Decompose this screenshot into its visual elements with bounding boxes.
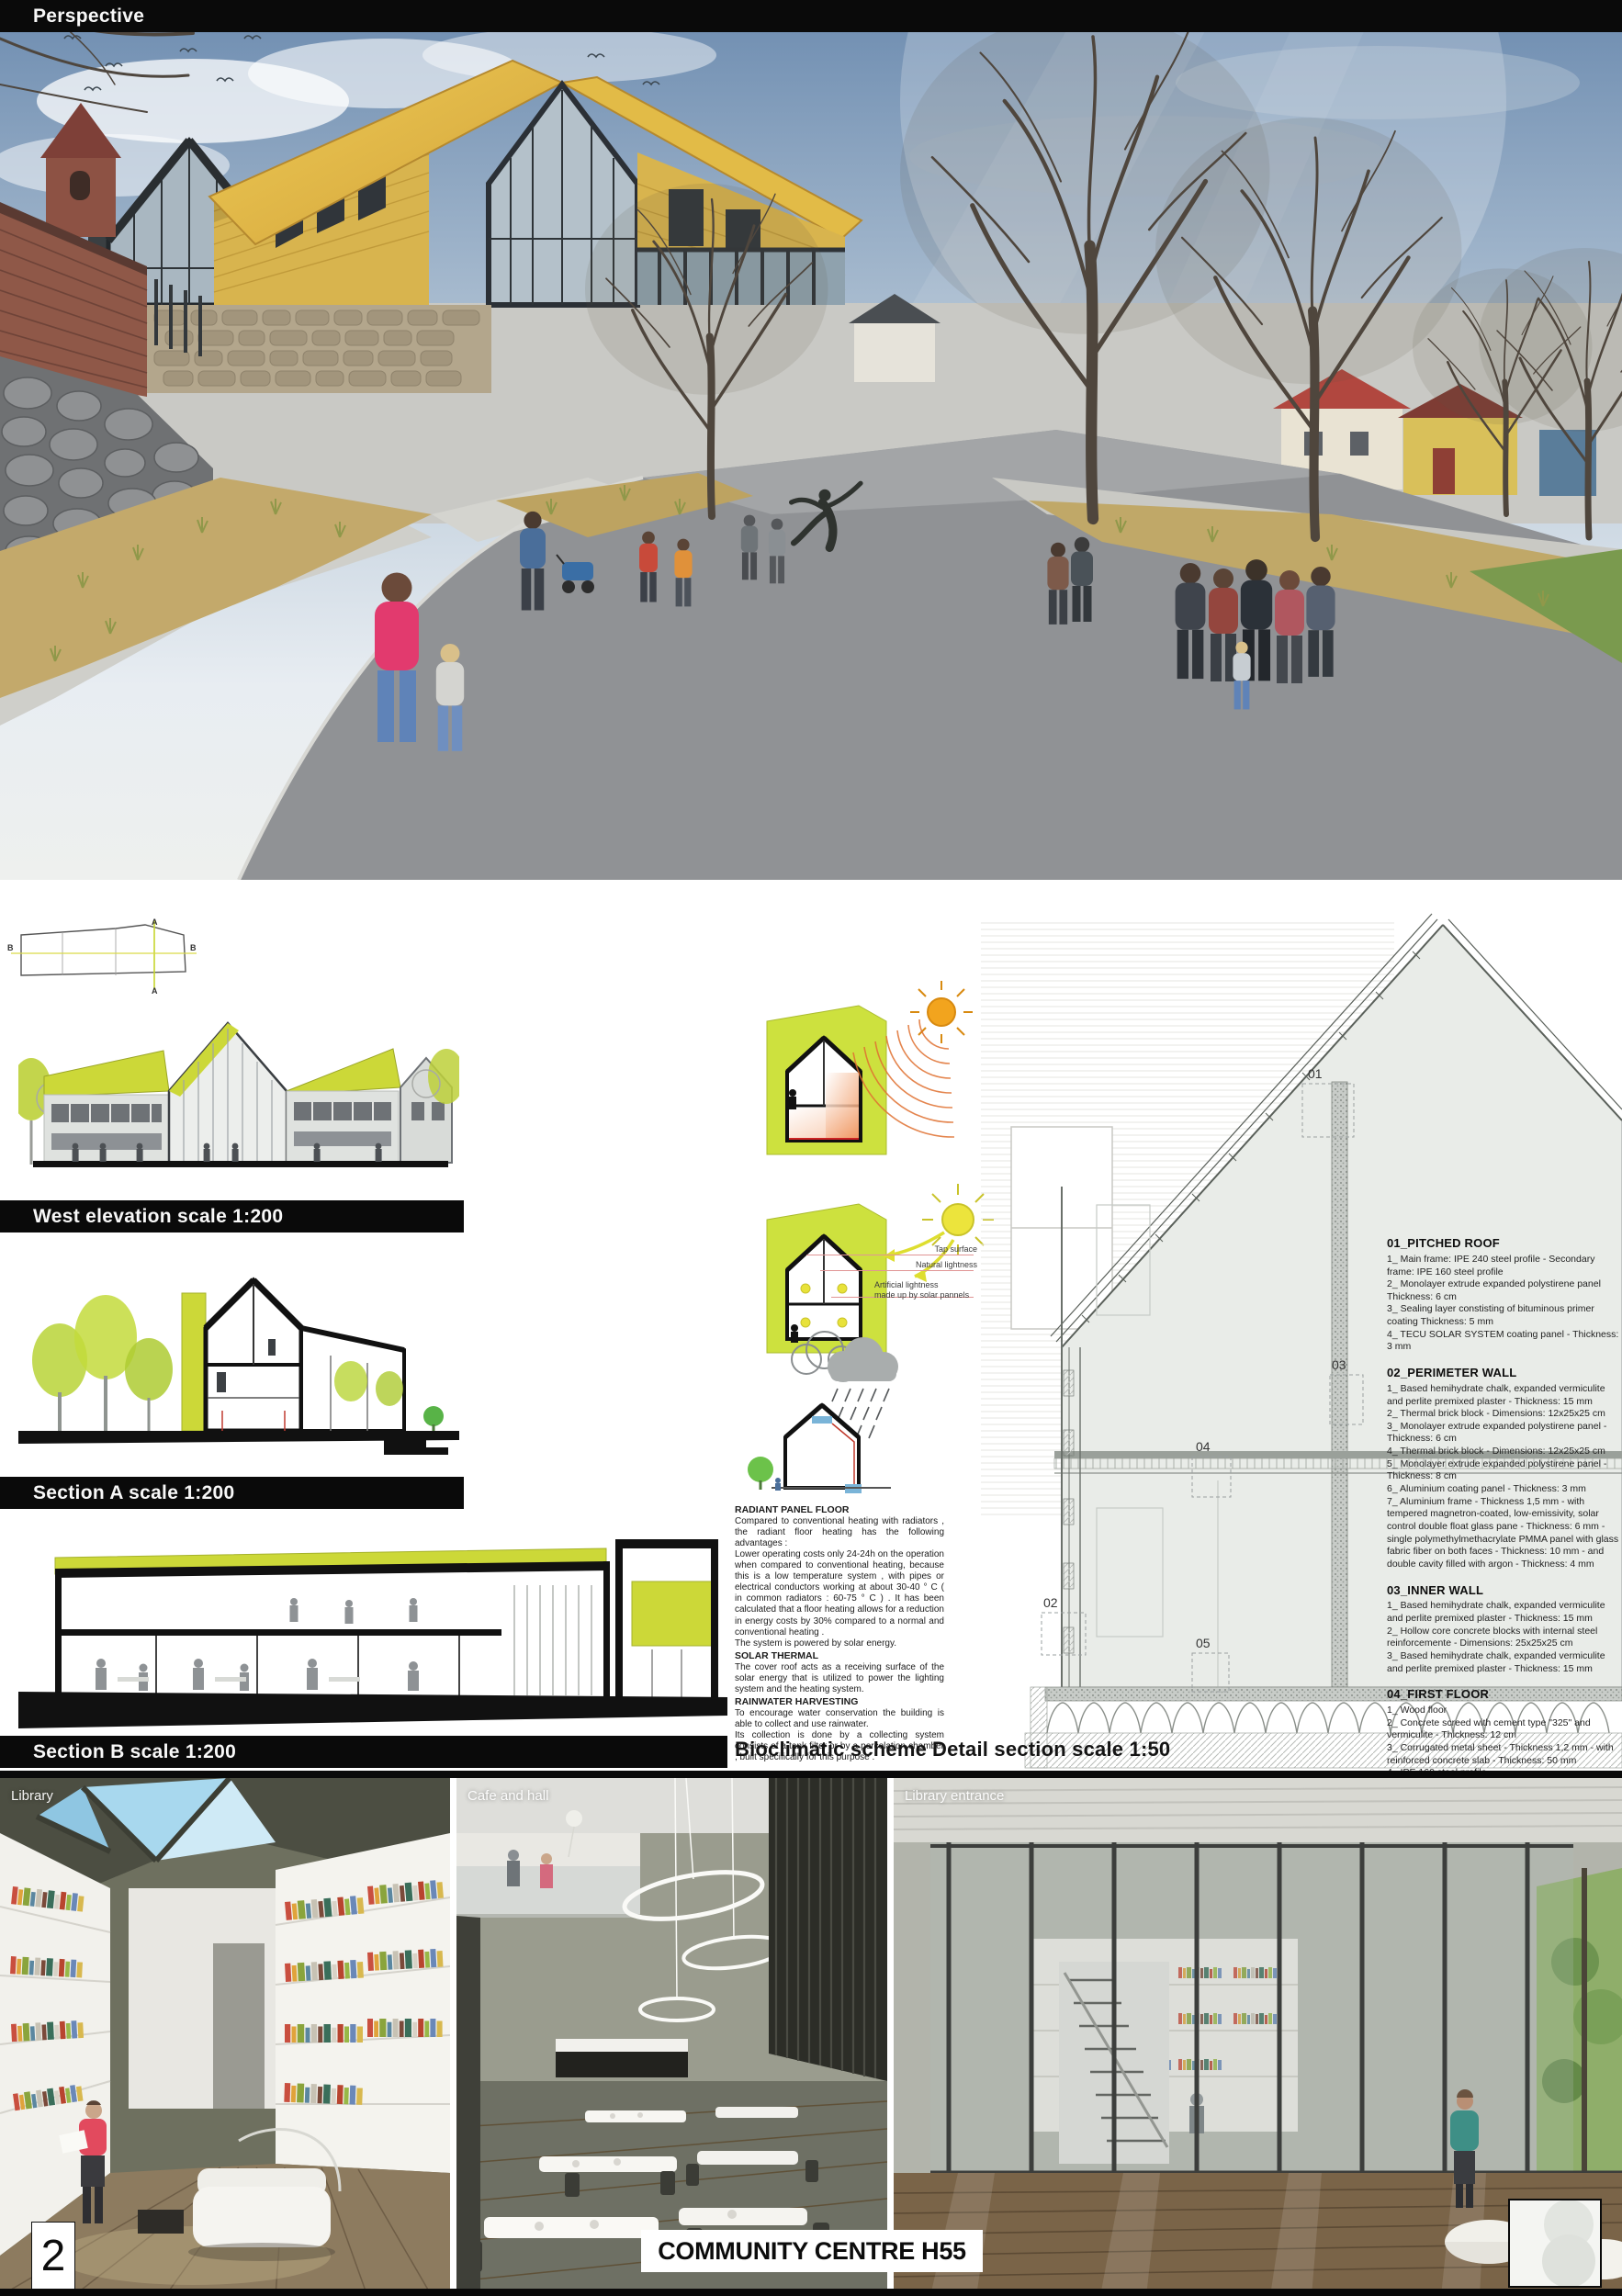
bioclimatic-paragraph: SOLAR THERMAL The cover roof acts as a r…: [735, 1650, 944, 1695]
building-shell: [55, 1561, 610, 1700]
spec-item: 7_ Aluminium frame - Thickness 1,5 mm - …: [1387, 1496, 1620, 1571]
spec-item: 2_ Thermal brick block - Dimensions: 12x…: [1387, 1408, 1620, 1421]
bioclimatic-title: Bioclimatic scheme: [735, 1738, 927, 1761]
inner-wall: [1332, 1082, 1347, 1687]
ground-band: [33, 1161, 448, 1167]
spec-items: 1_ Main frame: IPE 240 steel profile - S…: [1387, 1254, 1620, 1354]
spec-section: 02_PERIMETER WALL 1_ Based hemihydrate c…: [1387, 1366, 1620, 1571]
spec-items: 1_ Based hemihydrate chalk, expanded ver…: [1387, 1600, 1620, 1675]
section-a-drawing: [18, 1236, 459, 1473]
spec-section: 03_INNER WALL 1_ Based hemihydrate chalk…: [1387, 1583, 1620, 1676]
perspective-label: Perspective: [33, 6, 144, 28]
rainwater-house: [748, 1405, 891, 1493]
spec-item: 1_ Based hemihydrate chalk, expanded ver…: [1387, 1383, 1620, 1408]
left-partition: [456, 1916, 480, 2296]
spec-item: 1_ Based hemihydrate chalk, expanded ver…: [1387, 1600, 1620, 1625]
lime-trees-left: [32, 1295, 173, 1431]
callout-02: 02: [1043, 1595, 1058, 1610]
counter: [556, 2039, 688, 2077]
page-number-box: 2: [31, 2222, 75, 2290]
logo-mark-icon: [1510, 2200, 1600, 2286]
section-a-label: Section A scale 1:200: [33, 1482, 235, 1504]
west-elevation-label-bar: West elevation scale 1:200: [0, 1200, 464, 1232]
bottom-edge-strip: [0, 2289, 1622, 2296]
marker-b-left: B: [7, 943, 14, 952]
library-render: [0, 1778, 450, 2296]
spec-item: 4_ Thermal brick block - Dimensions: 12x…: [1387, 1446, 1620, 1458]
right-shelving: [276, 1833, 450, 2173]
panel-label-entrance: Library entrance: [905, 1788, 1004, 1804]
west-elevation-label: West elevation scale 1:200: [33, 1206, 283, 1228]
spec-heading: 01_PITCHED ROOF: [1387, 1236, 1620, 1252]
perspective-label-bar: Perspective: [0, 0, 1622, 32]
marker-b-right: B: [190, 943, 197, 952]
section-a-label-bar: Section A scale 1:200: [0, 1477, 464, 1509]
cafe-render: [456, 1778, 887, 2296]
spec-section: 01_PITCHED ROOF 1_ Main frame: IPE 240 s…: [1387, 1236, 1620, 1354]
section-b-label: Section B scale 1:200: [33, 1741, 236, 1763]
logo-box: [1508, 2199, 1602, 2288]
spec-item: 3_ Corrugated metal sheet - Thickness 1,…: [1387, 1742, 1620, 1767]
spec-item: 1_ Wood floor: [1387, 1705, 1620, 1717]
spec-heading: 02_PERIMETER WALL: [1387, 1366, 1620, 1381]
bioclimatic-paragraph: RADIANT PANEL FLOOR Compared to conventi…: [735, 1504, 944, 1649]
spec-item: 6_ Aluminium coating panel - Thickness: …: [1387, 1483, 1620, 1496]
spec-item: 3_ Sealing layer constisting of bitumino…: [1387, 1303, 1620, 1328]
bioclimatic-text: RADIANT PANEL FLOOR Compared to conventi…: [735, 1504, 944, 1764]
spec-item: 5_ Monolayer extrude expanded polystiren…: [1387, 1458, 1620, 1483]
callout-04: 04: [1196, 1439, 1211, 1454]
solar-thermal-diagram: [767, 1006, 886, 1154]
bioclimatic-paragraph-heading: RAINWATER HARVESTING: [735, 1696, 944, 1708]
ground-mass: [18, 1692, 727, 1728]
spec-item: 4_ TECU SOLAR SYSTEM coating panel - Thi…: [1387, 1329, 1620, 1354]
spec-item: 2_ Monolayer extrude expanded polystiren…: [1387, 1278, 1620, 1303]
spec-heading: 03_INNER WALL: [1387, 1583, 1620, 1599]
left-building: [44, 1051, 169, 1163]
section-divider: [0, 1771, 1622, 1778]
bioclimatic-paragraph-body: Compared to conventional heating with ra…: [735, 1516, 944, 1649]
spec-item: 2_ Hollow core concrete blocks with inte…: [1387, 1626, 1620, 1650]
key-plan-diagram: A A B B: [7, 917, 200, 994]
spec-heading: 04_FIRST FLOOR: [1387, 1687, 1620, 1703]
presentation-board: Perspective A A B B: [0, 0, 1622, 2296]
page-number: 2: [41, 2231, 66, 2281]
spec-item: 3_ Monolayer extrude expanded polystiren…: [1387, 1421, 1620, 1446]
callout-01: 01: [1308, 1066, 1323, 1081]
bioclimatic-paragraph-heading: SOLAR THERMAL: [735, 1650, 944, 1662]
board-title: COMMUNITY CENTRE H55: [658, 2237, 966, 2266]
board-title-box: COMMUNITY CENTRE H55: [641, 2230, 983, 2272]
callout-05: 05: [1196, 1636, 1211, 1650]
center-gable: [169, 1023, 287, 1163]
marker-a-top: A: [152, 917, 158, 927]
panel-label-cafe: Cafe and hall: [467, 1788, 548, 1804]
tall-block-right: [615, 1539, 718, 1700]
slat-wall: [769, 1778, 887, 2081]
detail-section-title: Detail section scale 1:50: [932, 1738, 1170, 1761]
natural-light-diagram: [767, 1204, 886, 1353]
callout-03: 03: [1332, 1357, 1346, 1372]
right-building: [287, 1049, 400, 1163]
section-b-drawing: [18, 1512, 727, 1732]
perspective-render: [0, 0, 1622, 880]
section-b-label-bar: Section B scale 1:200: [0, 1736, 727, 1768]
spec-items: 1_ Based hemihydrate chalk, expanded ver…: [1387, 1383, 1620, 1571]
spec-item: 3_ Based hemihydrate chalk, expanded ver…: [1387, 1650, 1620, 1675]
ground-mass: [18, 1431, 459, 1455]
glass-wall: [930, 1842, 1622, 2179]
spec-item: 1_ Main frame: IPE 240 steel profile - S…: [1387, 1254, 1620, 1278]
bioclimatic-paragraph-heading: RADIANT PANEL FLOOR: [735, 1504, 944, 1516]
spec-item: 2_ Concrete screed with cement type "325…: [1387, 1717, 1620, 1742]
house-section: [182, 1280, 301, 1431]
bioclimatic-paragraph-body: The cover roof acts as a receiving surfa…: [735, 1662, 944, 1695]
west-elevation-drawing: [18, 988, 459, 1198]
panel-label-library: Library: [11, 1788, 53, 1804]
